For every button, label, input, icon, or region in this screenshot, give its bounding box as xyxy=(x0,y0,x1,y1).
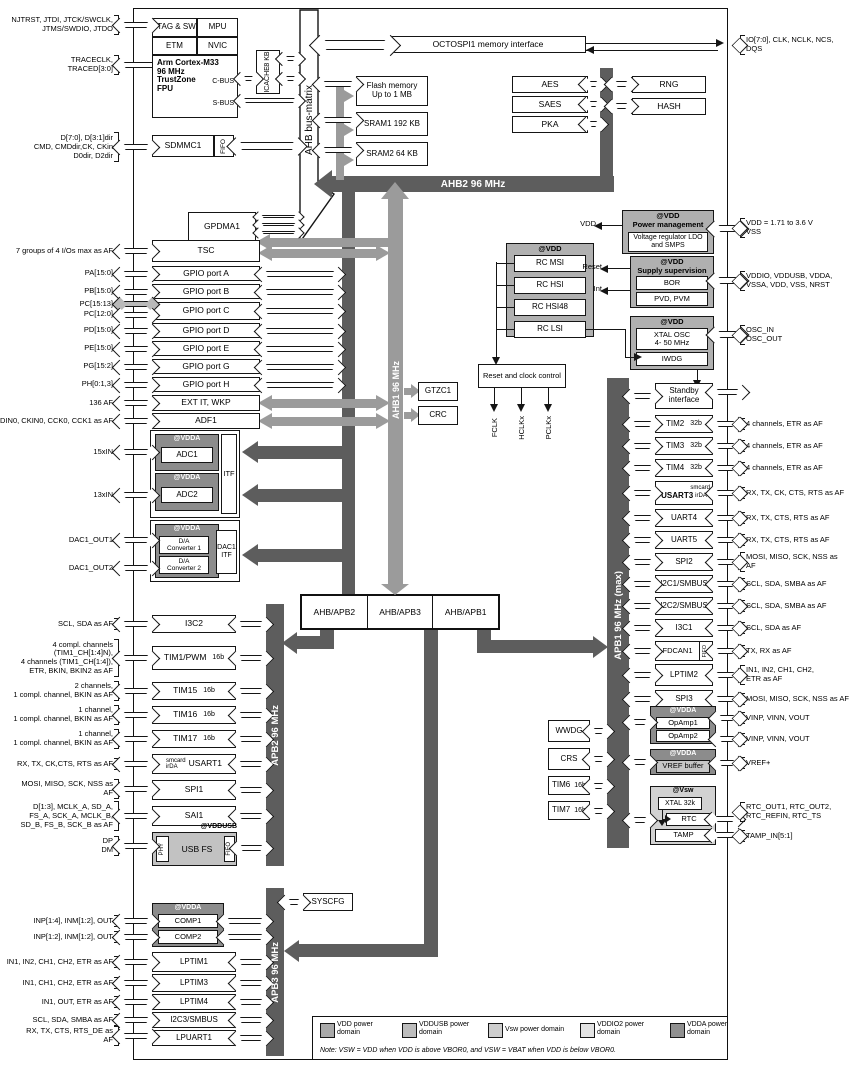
pin-label-line: PB[15:0] xyxy=(84,287,113,296)
ahb-apb-bridges: AHB/APB2 AHB/APB3 AHB/APB1 xyxy=(300,594,500,630)
apb1-row-arrow xyxy=(630,465,655,471)
apb1-row-arrow xyxy=(630,537,655,543)
apb1-bus-label: APB1 96 MHz (max) xyxy=(607,520,629,710)
pvd-pvm-block: PVD, PVM xyxy=(636,292,708,306)
bor-block: BOR xyxy=(636,276,708,290)
apb2-bus-label: APB2 96 MHz xyxy=(266,660,284,810)
gpio-port-d-block: GPIO port D xyxy=(152,323,260,338)
block-line: D/A xyxy=(179,558,190,565)
vdd-out-label: VDD xyxy=(572,220,596,229)
tim1-pwm-block: TIM1/PWM16b xyxy=(152,646,236,670)
gpio-bus-arrow xyxy=(262,346,338,352)
pin-label: 4 compl. channels(TIM1_CH[1:4]N),4 chann… xyxy=(21,641,113,676)
apb1-row-arrow xyxy=(630,817,650,823)
sbus-arrow xyxy=(240,98,298,103)
legend-swatch xyxy=(580,1023,595,1038)
connector-line xyxy=(494,388,495,404)
gtzc1-block: GTZC1 xyxy=(418,382,458,401)
lptim1-block: LPTIM1 xyxy=(152,952,236,972)
ext-it-wkp-block: EXT IT, WKP xyxy=(152,395,260,411)
legend-label-line: VDDIO2 power xyxy=(597,1021,644,1029)
apb1-row-arrow xyxy=(630,625,655,631)
legend-label-line: VDDA power xyxy=(687,1021,727,1029)
legend-label: VDDIO2 powerdomain xyxy=(597,1021,644,1038)
pin-label-line: ETR, BKIN, BKIN2 as AF xyxy=(21,667,113,676)
syscfg-arrow xyxy=(285,899,303,905)
pin-label: IO[7:0], CLK, NCLK, NCS,DQS xyxy=(746,36,834,54)
pin-label: SCL, SDA, SMBA as AF xyxy=(746,580,826,589)
bus-arrowhead xyxy=(492,357,500,365)
clock-name: PCLKx xyxy=(544,416,553,439)
pin-arrow xyxy=(120,959,152,965)
pka-arrow xyxy=(586,121,601,127)
legend-label-line: domain xyxy=(687,1029,727,1037)
pin-label: PE[15:0] xyxy=(84,344,113,353)
pin-label: VREF+ xyxy=(746,759,770,768)
gpio-bus-arrow xyxy=(262,364,338,370)
pin-label: VINP, VINN, VOUT xyxy=(746,735,810,744)
pin-label-line: VSS xyxy=(746,228,813,237)
pin-label-line: 136 AF xyxy=(89,399,113,408)
pin-label: VDD = 1.71 to 3.6 VVSS xyxy=(746,219,813,237)
bus-arrowhead xyxy=(258,413,272,429)
pin-label: SDIN0, CKIN0, CCK0, CCK1 as AF xyxy=(0,417,113,426)
pin-label-line: VSSA, VDD, VSS, NRST xyxy=(746,281,832,290)
domain-title: @Vsw xyxy=(651,787,715,795)
pin-label-line: DAC1_OUT1 xyxy=(69,536,113,545)
apb3-row-arrow xyxy=(236,1035,266,1041)
pin-arrow xyxy=(120,382,152,388)
icache-arrow xyxy=(282,56,298,61)
pin-arrow xyxy=(120,565,152,571)
bus-arrowhead xyxy=(242,544,258,566)
pin-label: SCL, SDA as AF xyxy=(58,620,113,629)
apb2-row-arrow xyxy=(236,688,266,694)
pin-label: 136 AF xyxy=(89,399,113,408)
vertical-label: ICACHE xyxy=(264,66,272,92)
usb-fs-label: USB FS xyxy=(172,844,222,854)
tag-line: irDA xyxy=(166,764,186,770)
ahb2-bus: AHB2 96 MHz xyxy=(332,176,614,192)
apb1-row-arrow xyxy=(630,759,650,765)
pin-arrow xyxy=(120,843,152,849)
legend-swatch xyxy=(402,1023,417,1038)
apb2-row-arrow xyxy=(236,761,266,767)
block-label: USART3 xyxy=(661,492,693,501)
dac-bus-arrow xyxy=(258,549,355,562)
pin-label: VINP, VINN, VOUT xyxy=(746,714,810,723)
gtzc-stub xyxy=(404,388,411,395)
hash-arrow xyxy=(612,103,631,109)
apb1-row-arrow xyxy=(630,490,655,496)
pin-arrow xyxy=(120,289,152,295)
jtag-sw-block: JTAG & SW xyxy=(152,18,197,37)
bus-arrowhead xyxy=(344,154,354,166)
pin-label-line: 13xIN xyxy=(93,491,113,500)
connector-line xyxy=(496,307,514,308)
pin-arrow xyxy=(120,934,152,940)
pin-label-line: SCL, SDA as AF xyxy=(746,624,801,633)
block-label: USB FS xyxy=(172,844,222,854)
pin-label: RX, TX, CK,CTS, RTS as AF xyxy=(17,760,113,769)
gpio-port-b-block: GPIO port B xyxy=(152,284,260,299)
block-line: Voltage regulator LDO xyxy=(633,234,702,242)
dac-converter2-block: D/AConverter 2 xyxy=(159,556,209,574)
pin-label-line: 4 channels, ETR as AF xyxy=(746,420,823,429)
apb1-row-arrow xyxy=(630,696,655,702)
pin-label: PC[15:13] xyxy=(80,300,113,309)
pin-arrow xyxy=(120,301,152,307)
bus-arrowhead xyxy=(376,245,390,261)
pin-arrow xyxy=(120,449,152,455)
connector-line xyxy=(625,329,626,358)
pin-label-line: IN1, OUT, ETR as AF xyxy=(42,998,113,1007)
legend-label-line: VDD power xyxy=(337,1021,373,1029)
pin-arrow xyxy=(120,418,152,424)
pin-label-line: INP[1:4], INM[1:2], OUT xyxy=(33,917,113,926)
tim16-block: TIM1616b xyxy=(152,706,236,724)
legend-label: VDD powerdomain xyxy=(337,1021,373,1038)
rng-arrow xyxy=(612,81,631,87)
apb3-row-arrow xyxy=(236,959,266,965)
block-label: TIM7 xyxy=(552,806,570,815)
pin-label-line: PG[15:2] xyxy=(83,362,113,371)
domain-title: Supply supervision xyxy=(631,266,713,275)
bus-arrowhead xyxy=(716,39,724,47)
legend-label-line: domain xyxy=(597,1029,644,1037)
voltage-regulator-block: Voltage regulator LDOand SMPS xyxy=(628,232,708,252)
pin-label: RX, TX, CTS, RTS as AF xyxy=(746,514,830,523)
pin-label-line: 7 groups of 4 I/Os max as AF xyxy=(16,247,113,256)
bus-arrowhead xyxy=(586,46,594,54)
nvic-block: NVIC xyxy=(197,37,238,55)
apb3-bus-label: APB3 96 MHz xyxy=(266,900,284,1045)
block-line: Up to 1 MB xyxy=(372,91,412,100)
pin-label-line: 1 compl. channel, BKIN as AF xyxy=(13,715,113,724)
pin-label-line: MOSI, MISO, SCK, NSS as xyxy=(21,780,113,789)
bridge-ahb-apb3: AHB/APB3 xyxy=(367,596,434,628)
pin-label-line: 4 channels, ETR as AF xyxy=(746,464,823,473)
apb3-arm-head xyxy=(284,940,299,962)
pin-arrow xyxy=(120,62,152,68)
legend-label: VDDA powerdomain xyxy=(687,1021,727,1038)
block-label: TIM1/PWM xyxy=(164,653,207,662)
block-tag: 16b xyxy=(203,711,215,719)
block-label: USART1 xyxy=(189,759,222,768)
apb1-row-arrow xyxy=(630,603,655,609)
apb2-row-arrow xyxy=(236,621,266,627)
connector-line xyxy=(600,225,622,226)
gpio-bus-arrow xyxy=(262,289,338,295)
bus-arrowhead xyxy=(258,395,272,411)
adf1-bus-arrow xyxy=(272,417,376,426)
pin-label-line: MOSI, MISO, SCK, NSS as xyxy=(746,553,838,562)
soc-block-diagram: AHB bus-matrix AHB2 96 MHz AHB1 96 MHz A… xyxy=(0,0,850,1071)
apb3-feed xyxy=(424,630,438,946)
pin-label-line: MOSI, MISO, SCK, NSS as AF xyxy=(746,695,849,704)
pin-label-line: DM xyxy=(101,846,113,855)
pin-label-line: AF xyxy=(746,562,838,571)
comp2-block: COMP2 xyxy=(158,930,218,944)
pin-label-line: PC[12:0] xyxy=(84,310,113,319)
block-tag: 32b xyxy=(690,420,702,428)
gpdma-arrow xyxy=(258,223,298,226)
rc-lsi-block: RC LSI xyxy=(514,321,586,338)
pin-label-line: DAC1_OUT2 xyxy=(69,564,113,573)
apb3-row-arrow xyxy=(224,934,266,940)
apb1-row-arrow xyxy=(630,515,655,521)
apb1-arm-head xyxy=(593,636,608,658)
pin-label: PG[15:2] xyxy=(83,362,113,371)
pin-arrow xyxy=(120,364,152,370)
memory-feed-bus xyxy=(336,84,344,180)
pin-label-line: VINP, VINN, VOUT xyxy=(746,714,810,723)
gpdma-arrow xyxy=(258,231,298,234)
domain-title: @VDD xyxy=(623,211,713,220)
octospi1-block: OCTOSPI1 memory interface xyxy=(390,36,586,53)
comp1-block: COMP1 xyxy=(158,914,218,928)
pin-label: INP[1:2], INM[1:2], OUT xyxy=(33,933,113,942)
pin-label-line: D0dir, D2dir xyxy=(34,152,113,161)
block-label: TIM16 xyxy=(173,710,197,719)
connector-line xyxy=(697,370,698,380)
pin-label: RX, TX, CTS, RTS as AF xyxy=(746,536,830,545)
clock-name: HCLKx xyxy=(517,416,526,440)
pin-label-line: 1 compl. channel, BKIN as AF xyxy=(13,739,113,748)
pin-label: D[7:0], D[3:1]dirCMD, CMDdir,CK, CKinD0d… xyxy=(34,134,113,161)
pin-label: 1 channel,1 compl. channel, BKIN as AF xyxy=(13,730,113,748)
pin-label: IN1, IN2, CH1, CH2, ETR as AF xyxy=(7,958,113,967)
pin-arrow xyxy=(120,22,152,28)
gpio-port-h-block: GPIO port H xyxy=(152,377,260,392)
opamp2-block: OpAmp2 xyxy=(656,730,710,742)
pin-label: IN1, OUT, ETR as AF xyxy=(42,998,113,1007)
pin-arrow xyxy=(120,813,152,819)
adf1-block: ADF1 xyxy=(152,413,260,429)
pin-label: OSC_INOSC_OUT xyxy=(746,326,782,344)
apb1-row-arrow xyxy=(630,719,650,725)
tim15-block: TIM1516b xyxy=(152,682,236,700)
apb3-row-arrow xyxy=(224,918,266,924)
domain-title: @VDDA xyxy=(153,904,223,912)
tsc-block: TSC xyxy=(152,240,260,262)
block-label: TIM6 xyxy=(552,781,570,790)
ahb2-arrowhead xyxy=(314,170,332,198)
legend-label: VDDUSB powerdomain xyxy=(419,1021,469,1038)
vertical-label: 8 KB xyxy=(264,51,272,66)
pin-arrow xyxy=(120,736,152,742)
pin-label-line: AF xyxy=(21,789,113,798)
pin-label: NJTRST, JTDI, JTCK/SWCLK,JTMS/SWDIO, JTD… xyxy=(11,16,113,34)
gpio-port-a-block: GPIO port A xyxy=(152,266,260,281)
saes-block: SAES xyxy=(512,96,588,113)
gpio-port-c-block: GPIO port C xyxy=(152,302,260,320)
dac1-itf-block: DAC1ITF xyxy=(216,530,237,574)
apb1-row-arrow xyxy=(630,421,655,427)
sdmmc-bus-arrow xyxy=(236,142,298,150)
pin-label-line: VREF+ xyxy=(746,759,770,768)
apb1-row-arrow xyxy=(630,393,655,399)
legend-note: Note: VSW = VDD when VDD is above VBOR0,… xyxy=(320,1047,616,1055)
bus-arrowhead xyxy=(344,124,354,136)
connector-line xyxy=(548,388,549,404)
pin-arrow xyxy=(120,312,152,318)
pin-label-line: 15xIN xyxy=(93,448,113,457)
block-line: Converter 1 xyxy=(167,545,201,552)
pin-label: PB[15:0] xyxy=(84,287,113,296)
connector-line xyxy=(586,329,626,330)
pin-arrow xyxy=(120,918,152,924)
flash-arrow xyxy=(320,81,356,87)
hash-block: HASH xyxy=(632,98,706,115)
cortex-core-block: Arm Cortex-M3396 MHzTrustZoneFPUC-BUSS-B… xyxy=(152,55,238,118)
gpio-bus-arrow xyxy=(262,328,338,334)
xtal-osc-block: XTAL OSC4- 50 MHz xyxy=(636,328,708,350)
pin-label: DAC1_OUT1 xyxy=(69,536,113,545)
sram2-block: SRAM2 64 KB xyxy=(356,142,428,166)
pin-label: SCL, SDA as AF xyxy=(746,624,801,633)
pin-arrow xyxy=(120,999,152,1005)
int-out-label: Int xyxy=(578,285,602,294)
icache-arrow xyxy=(282,76,298,81)
apb3-row-arrow xyxy=(236,980,266,986)
domain-title: @VDDA xyxy=(156,525,218,533)
pin-arrow xyxy=(120,248,152,254)
pin-label-line: JTMS/SWDIO, JTDO xyxy=(11,25,113,34)
pin-arrow xyxy=(120,492,152,498)
apb2-row-arrow xyxy=(236,787,266,793)
pin-label-line: VINP, VINN, VOUT xyxy=(746,735,810,744)
pin-arrow xyxy=(120,712,152,718)
pin-label: TX, RX as AF xyxy=(746,647,791,656)
pin-label-line: SDIN0, CKIN0, CCK0, CCK1 as AF xyxy=(0,417,113,426)
domain-title: @VDD xyxy=(631,317,713,326)
apb2-row-arrow xyxy=(237,845,266,851)
apb2-row-arrow xyxy=(236,813,266,819)
vddusb-domain-label: @VDDUSB xyxy=(165,823,237,831)
etm-block: ETM xyxy=(152,37,197,55)
pin-label-line: SD_B, FS_B, SCK_B as AF xyxy=(20,821,113,830)
cbus-label: C-BUS xyxy=(212,78,234,86)
pin-label: 13xIN xyxy=(93,491,113,500)
pin-label: DAC1_OUT2 xyxy=(69,564,113,573)
apb1-row-arrow xyxy=(590,783,607,789)
bus-arrowhead xyxy=(658,820,666,826)
adc2-block: ADC2 xyxy=(161,487,213,503)
rcc-block: Reset and clock control xyxy=(478,364,566,388)
crc-stub xyxy=(404,412,411,419)
domain-title: @VDDA xyxy=(651,707,715,715)
pin-label-line: PC[15:13] xyxy=(80,300,113,309)
block-line: and SMPS xyxy=(651,242,684,250)
pin-label-line: AF xyxy=(26,1036,113,1045)
domain-title: @VDD xyxy=(631,257,713,266)
block-tag: 16b xyxy=(203,735,215,743)
domain-title: @VDDA xyxy=(651,750,715,758)
mpu-block: MPU xyxy=(197,18,238,37)
saes-arrow xyxy=(586,101,601,107)
pin-label-line: RX, TX, CK,CTS, RTS as AF xyxy=(17,760,113,769)
apb1-row-arrow xyxy=(590,756,607,762)
connector-line xyxy=(625,357,634,358)
legend-swatch xyxy=(670,1023,685,1038)
pin-label-line: RX, TX, CK, CTS, RTS as AF xyxy=(746,489,844,498)
pin-label-line: DQS xyxy=(746,45,834,54)
apb3-row-arrow xyxy=(236,1017,266,1023)
standby-pin-arrow xyxy=(713,389,742,395)
adc2-bus-arrow xyxy=(258,489,355,502)
pin-label-line: RX, TX, CTS, RTS as AF xyxy=(746,536,830,545)
gpio-bus-arrow xyxy=(262,271,338,277)
sram2-arrow xyxy=(320,147,356,153)
clock-name: FCLK xyxy=(490,418,499,437)
pin-label: PH[0:1,3] xyxy=(82,380,113,389)
apb2-row-arrow xyxy=(236,655,266,661)
tag-column: smcardirDA xyxy=(166,758,186,771)
apb2-arm xyxy=(296,636,334,649)
apb2-row-arrow xyxy=(236,712,266,718)
pin-label-line: 1 compl. channel, BKIN as AF xyxy=(13,691,113,700)
domain-title: Power management xyxy=(623,220,713,229)
octospi-bus-arrow xyxy=(320,40,390,50)
legend-label-line: VDDUSB power xyxy=(419,1021,469,1029)
pin-label-line: RX, TX, CTS, RTS as AF xyxy=(746,514,830,523)
pin-label-line: PE[15:0] xyxy=(84,344,113,353)
pin-label-line: SCL, SDA, SMBA as AF xyxy=(33,1016,113,1025)
connector-line xyxy=(586,43,718,44)
pin-label: RX, TX, CTS, RTS_DE asAF xyxy=(26,1027,113,1045)
flash-memory-block: Flash memoryUp to 1 MB xyxy=(356,76,428,106)
apb1-row-arrow xyxy=(630,672,655,678)
bridge-ahb-apb1: AHB/APB1 xyxy=(433,596,498,628)
rtc-pin-arrow xyxy=(712,816,738,822)
domain-title: @VDDUSB xyxy=(165,823,237,831)
block-line: Converter 2 xyxy=(167,565,201,572)
tim17-block: TIM1716b xyxy=(152,730,236,748)
pin-label-line: TX, RX as AF xyxy=(746,647,791,656)
apb3-row-arrow xyxy=(236,999,266,1005)
sram1-block: SRAM1 192 KB xyxy=(356,112,428,136)
apb3-arm xyxy=(298,944,438,957)
connector-line xyxy=(496,329,514,330)
pin-label: RX, TX, CK, CTS, RTS as AF xyxy=(746,489,844,498)
block-line: DAC1 xyxy=(217,544,236,552)
connector-line xyxy=(606,290,630,291)
spi1-block: SPI1 xyxy=(152,780,236,800)
ahb1-arrowhead-down xyxy=(381,584,409,595)
vdd-out-text: VDD xyxy=(572,220,596,229)
i3c2-block: I3C2 xyxy=(152,615,236,633)
domain-title: @VDD xyxy=(507,244,593,253)
domain-title: @VDDA xyxy=(156,435,218,443)
aes-block: AES xyxy=(512,76,588,93)
apb1-row-arrow xyxy=(630,581,655,587)
pin-arrow xyxy=(120,980,152,986)
apb2-arm-head xyxy=(282,632,297,654)
bridge-ahb-apb2: AHB/APB2 xyxy=(302,596,367,628)
bus-arrowhead xyxy=(242,441,258,463)
pin-arrow xyxy=(120,1033,152,1039)
pin-arrow xyxy=(120,271,152,277)
vref-buffer-block: VREF buffer xyxy=(656,760,710,773)
block-line: D/A xyxy=(179,538,190,545)
vertical-label: PHY xyxy=(159,843,165,855)
adc1-bus-arrow xyxy=(258,446,355,459)
pin-label: IN1, CH1, CH2, ETR as AF xyxy=(23,979,113,988)
core-line: FPU xyxy=(157,85,173,94)
xtal-32k-block: XTAL 32k xyxy=(658,797,702,810)
pin-label-line: SCL, SDA, SMBA as AF xyxy=(746,602,826,611)
